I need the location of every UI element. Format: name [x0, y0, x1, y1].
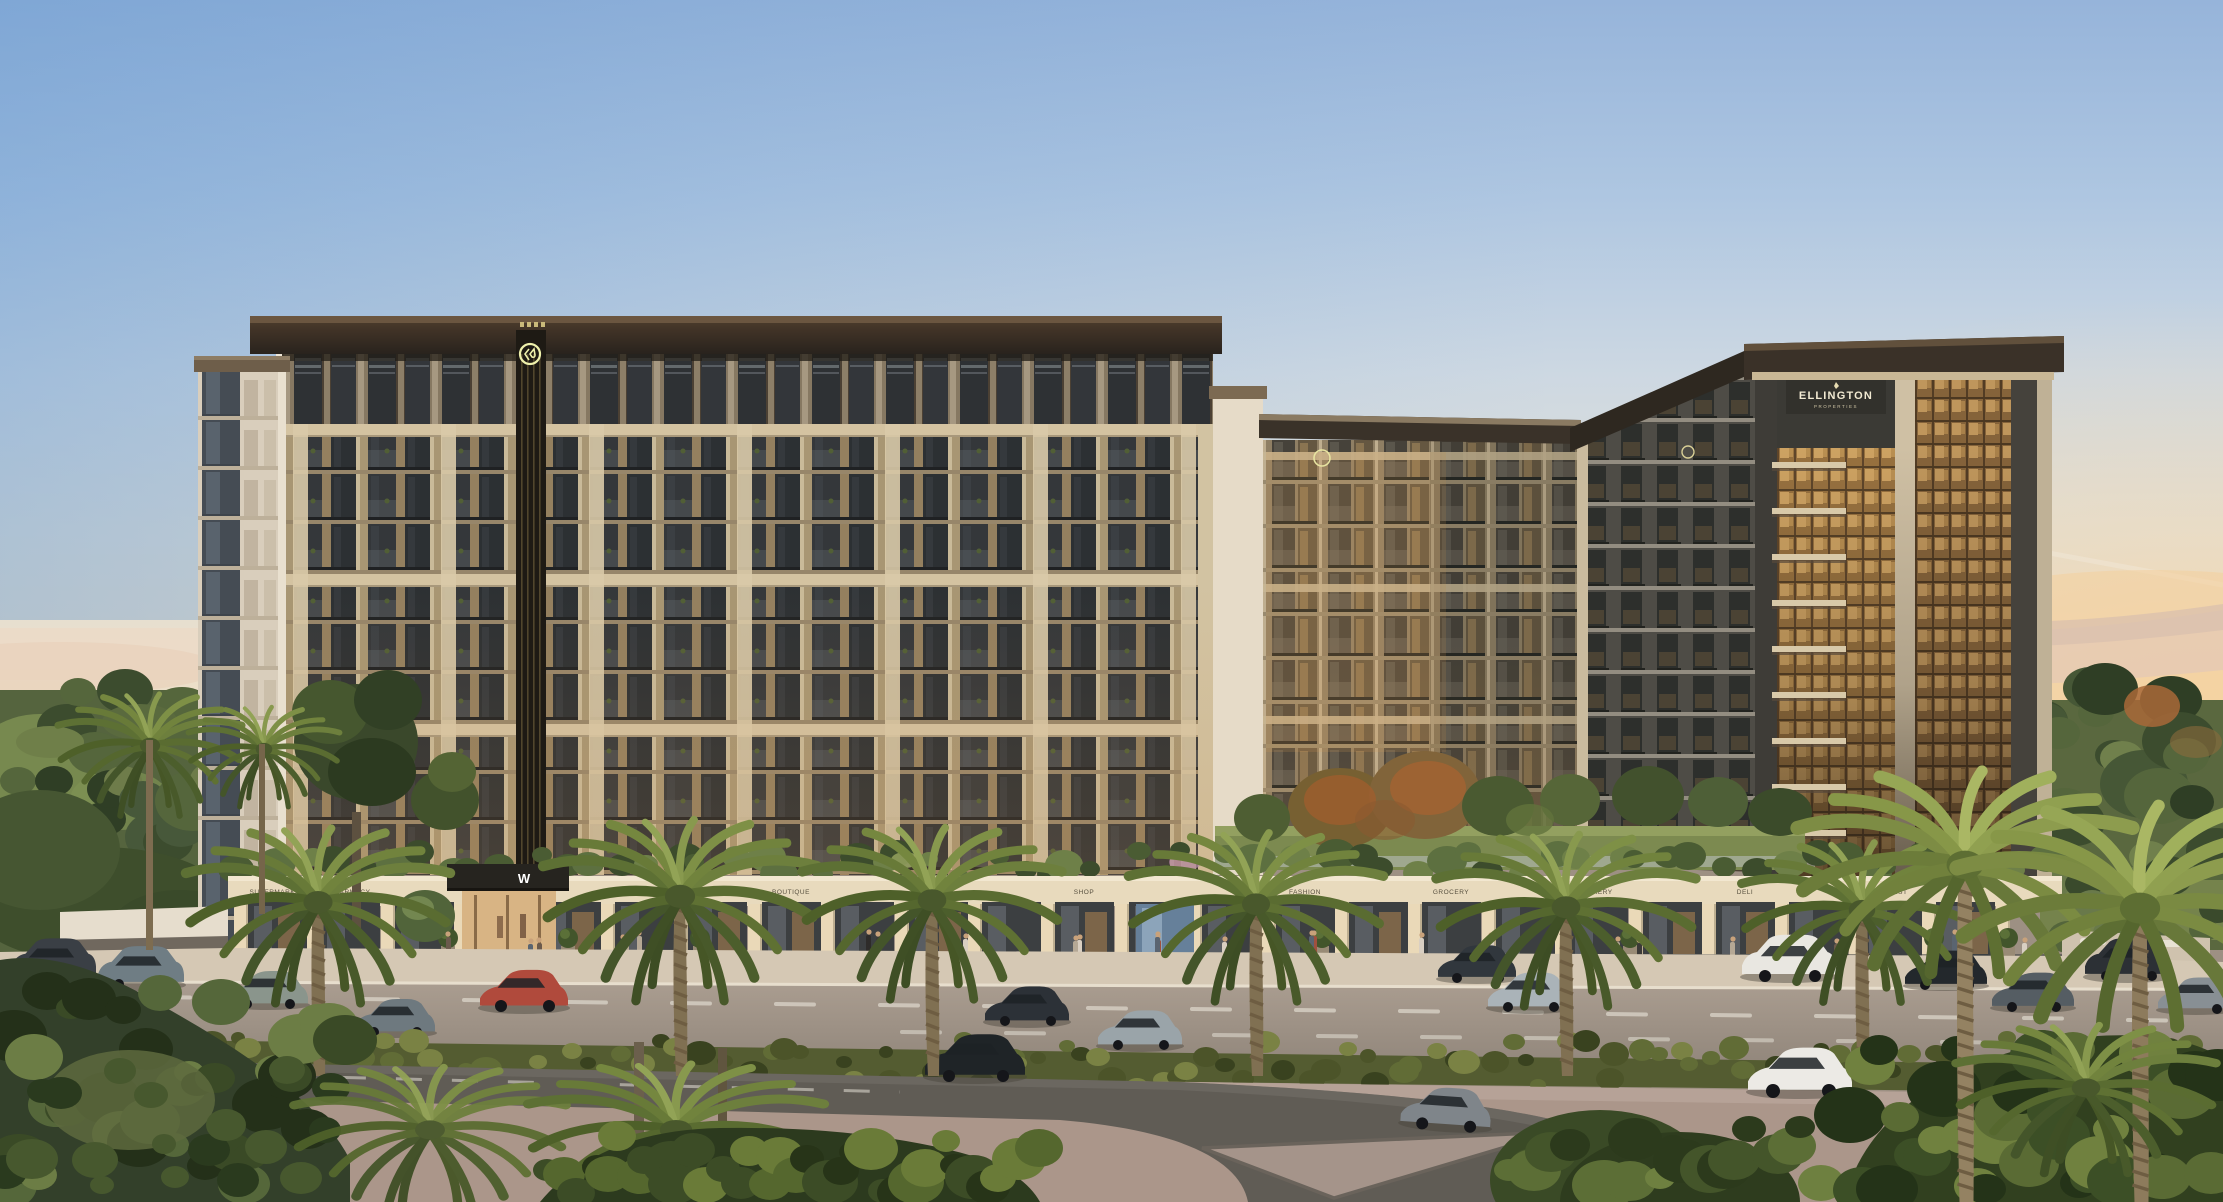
- svg-text:DELI: DELI: [1737, 889, 1753, 896]
- svg-text:GROCERY: GROCERY: [1433, 889, 1469, 896]
- svg-text:PROPERTIES: PROPERTIES: [1814, 404, 1858, 409]
- svg-text:ELLINGTON: ELLINGTON: [1799, 390, 1873, 402]
- svg-text:W: W: [518, 871, 531, 886]
- svg-text:SHOP: SHOP: [1074, 889, 1094, 896]
